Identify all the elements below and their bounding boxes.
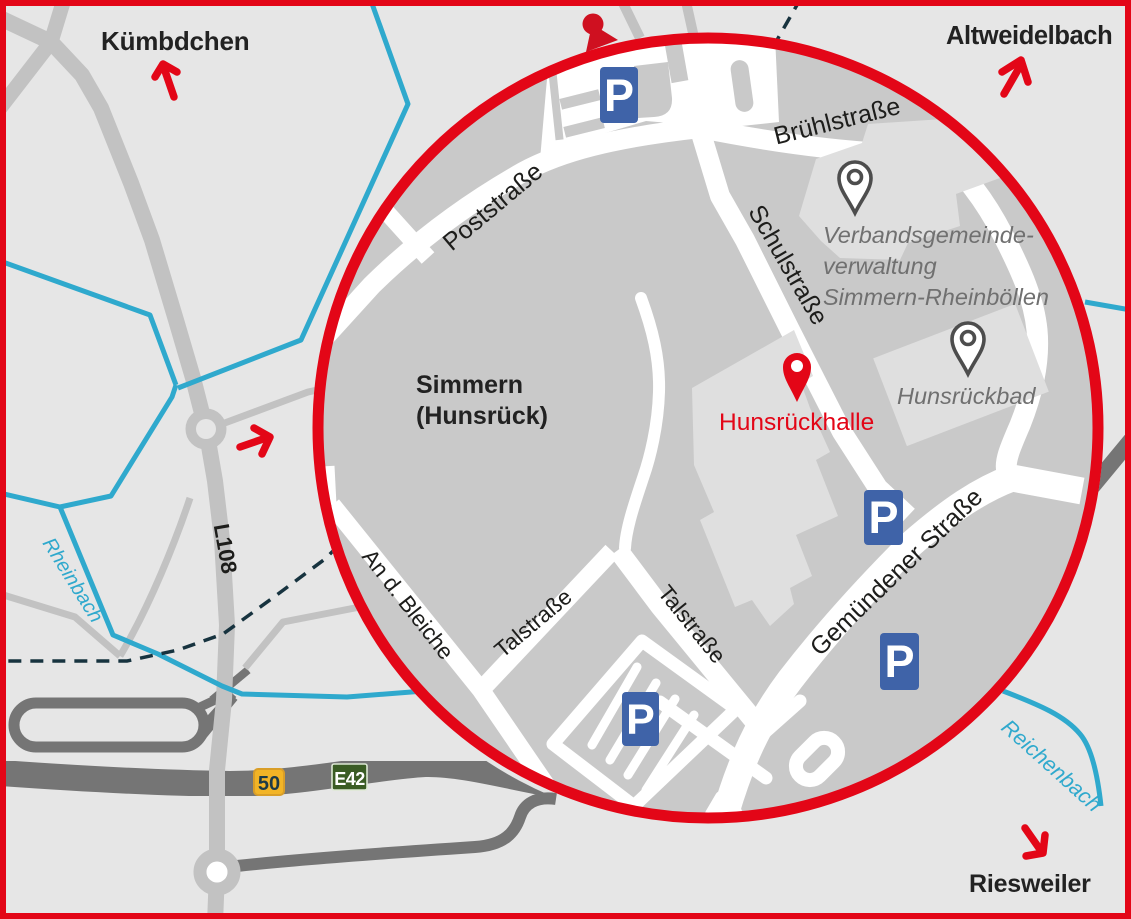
svg-text:P: P [604, 70, 634, 121]
svg-text:E42: E42 [334, 769, 365, 789]
svg-text:Simmern: Simmern [416, 371, 523, 399]
svg-text:50: 50 [258, 773, 280, 795]
svg-text:Simmern-Rheinböllen: Simmern-Rheinböllen [823, 284, 1049, 310]
svg-text:P: P [626, 696, 655, 744]
svg-text:Verbandsgemeinde-: Verbandsgemeinde- [823, 222, 1034, 248]
svg-text:(Hunsrück): (Hunsrück) [416, 402, 548, 430]
svg-text:Kümbdchen: Kümbdchen [101, 26, 249, 56]
svg-text:P: P [868, 492, 898, 543]
svg-text:Riesweiler: Riesweiler [969, 870, 1091, 898]
svg-text:Hunsrückbad: Hunsrückbad [897, 383, 1036, 409]
svg-text:Altweidelbach: Altweidelbach [946, 22, 1112, 50]
svg-text:verwaltung: verwaltung [823, 253, 937, 279]
svg-text:Hunsrückhalle: Hunsrückhalle [719, 409, 874, 436]
svg-text:P: P [884, 636, 914, 687]
